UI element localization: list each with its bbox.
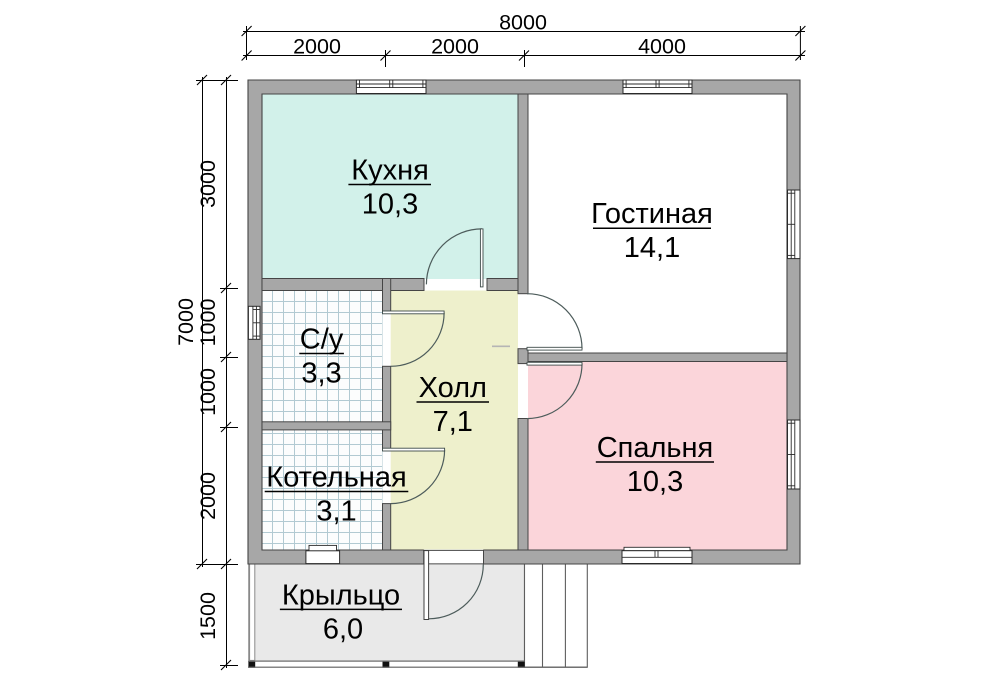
svg-text:Котельная: Котельная [266,462,406,494]
svg-text:2000: 2000 [431,35,479,59]
svg-text:Холл: Холл [419,372,487,404]
svg-text:7000: 7000 [174,298,198,346]
svg-text:Кухня: Кухня [351,155,429,187]
svg-text:1500: 1500 [196,592,220,640]
svg-text:4000: 4000 [638,35,686,59]
svg-text:Крыльцо: Крыльцо [282,579,400,611]
svg-text:1000: 1000 [196,368,220,416]
svg-text:1000: 1000 [196,299,220,347]
svg-text:6,0: 6,0 [323,613,363,645]
svg-text:10,3: 10,3 [627,466,683,498]
svg-text:10,3: 10,3 [362,189,418,221]
svg-text:3,3: 3,3 [301,358,341,390]
svg-text:3,1: 3,1 [316,496,356,528]
svg-text:2000: 2000 [293,35,341,59]
svg-text:Спальня: Спальня [597,432,714,464]
svg-text:3000: 3000 [196,160,220,208]
svg-text:Гостиная: Гостиная [591,198,713,230]
svg-text:2000: 2000 [196,472,220,520]
svg-text:14,1: 14,1 [624,232,680,264]
svg-text:С/у: С/у [300,324,344,356]
svg-text:8000: 8000 [499,11,547,35]
svg-text:7,1: 7,1 [433,406,473,438]
